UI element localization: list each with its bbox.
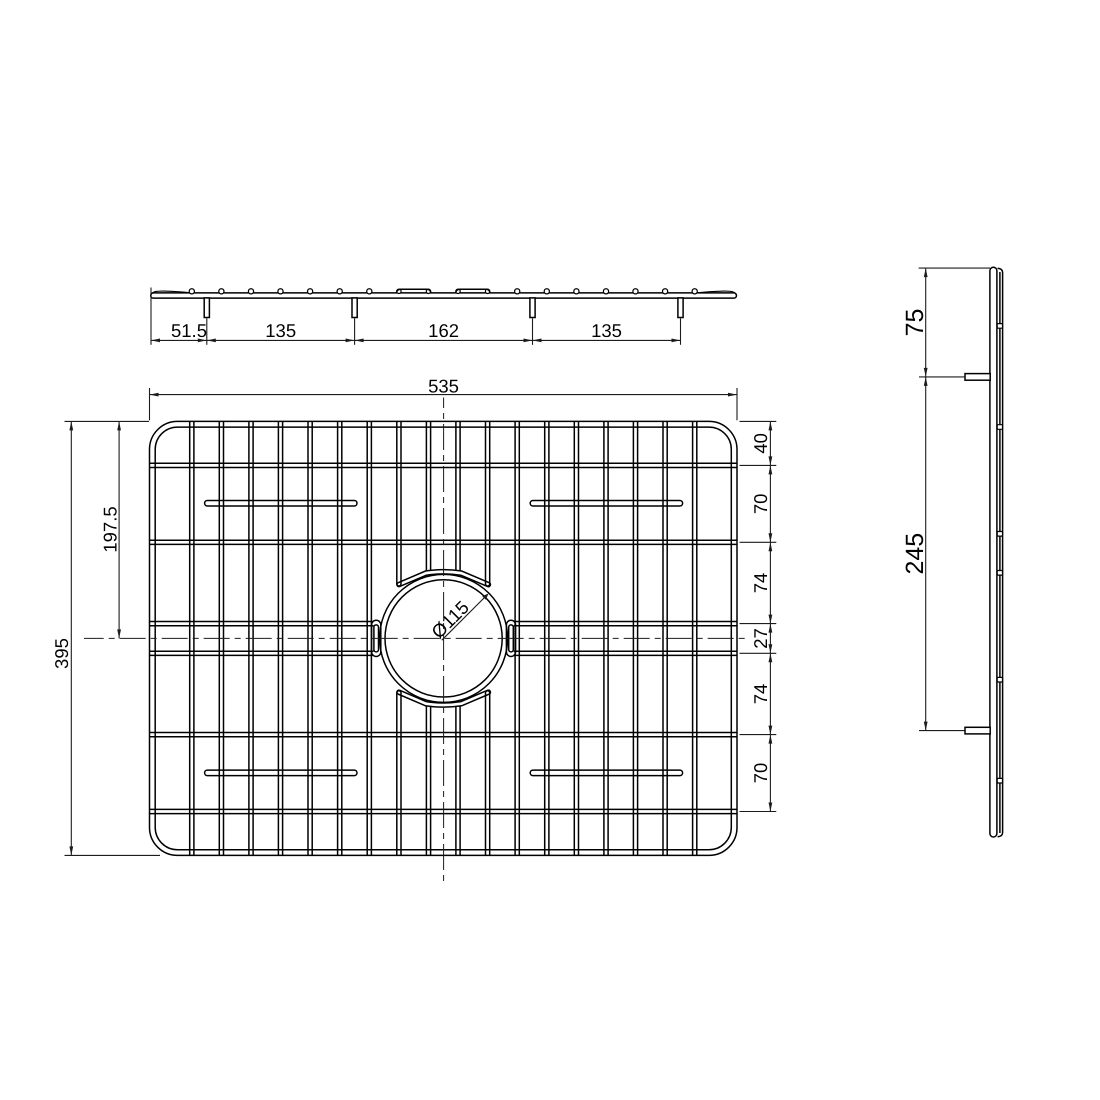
svg-text:245: 245 — [901, 533, 929, 575]
svg-text:74: 74 — [750, 684, 771, 705]
svg-text:70: 70 — [750, 494, 771, 515]
svg-text:70: 70 — [750, 763, 771, 784]
svg-text:197.5: 197.5 — [100, 506, 121, 552]
svg-text:75: 75 — [901, 309, 929, 337]
svg-text:74: 74 — [750, 573, 771, 594]
svg-text:535: 535 — [428, 376, 459, 397]
svg-text:395: 395 — [51, 638, 72, 669]
svg-text:40: 40 — [750, 433, 771, 454]
svg-text:51.5: 51.5 — [171, 320, 207, 341]
svg-text:162: 162 — [428, 320, 459, 341]
svg-text:27: 27 — [750, 628, 771, 649]
svg-text:135: 135 — [265, 320, 296, 341]
svg-text:135: 135 — [591, 320, 622, 341]
